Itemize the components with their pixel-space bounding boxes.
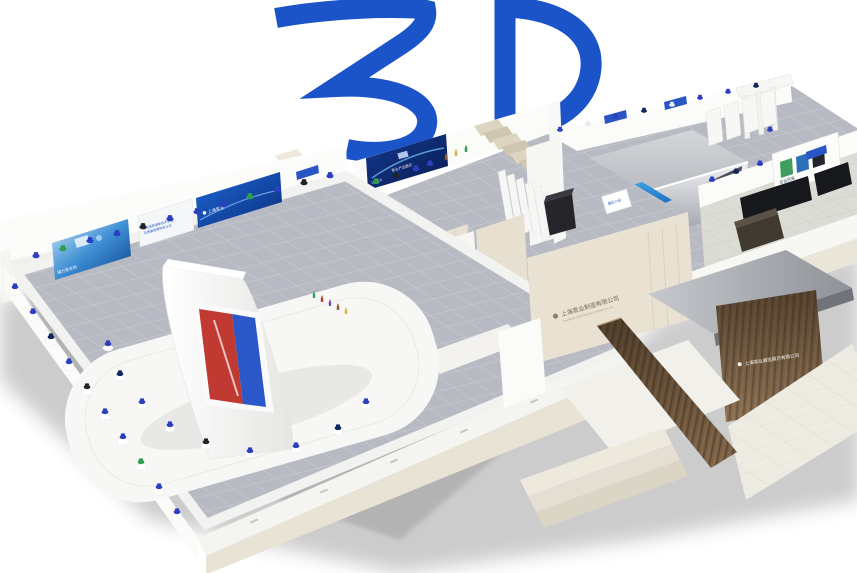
logo-3-glyph (276, 8, 427, 152)
exhibit-pump[interactable] (725, 89, 731, 94)
exhibit-pump[interactable] (697, 95, 703, 100)
scene-canvas[interactable]: 企业风采 上海泵业 泵业产品展示 (0, 0, 857, 573)
exhibition-3d-stage: 企业风采 上海泵业 泵业产品展示 (0, 0, 857, 573)
exhibit-pump[interactable] (585, 121, 591, 126)
exhibit-pump[interactable] (641, 108, 647, 113)
entrance-low-wall (498, 318, 546, 408)
